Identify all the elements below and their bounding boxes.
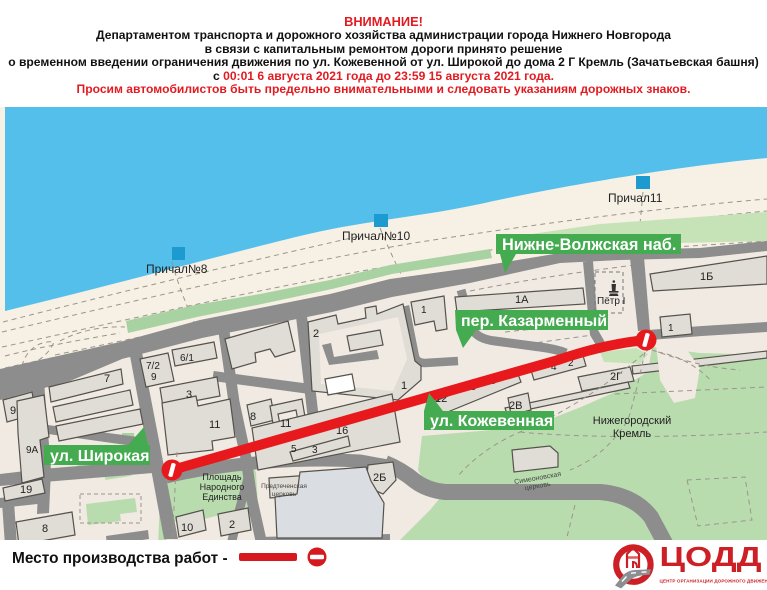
- svg-text:9А: 9А: [26, 445, 39, 456]
- svg-text:ул. Кожевенная: ул. Кожевенная: [430, 413, 553, 430]
- svg-text:8: 8: [250, 411, 256, 423]
- svg-text:Единства: Единства: [202, 492, 242, 502]
- svg-text:1: 1: [401, 380, 407, 392]
- svg-text:Нижегородский: Нижегородский: [593, 415, 671, 427]
- svg-text:пер. Казарменный: пер. Казарменный: [461, 313, 607, 330]
- svg-text:2: 2: [313, 328, 319, 340]
- svg-text:Кремль: Кремль: [613, 428, 652, 440]
- svg-text:Площадь: Площадь: [202, 472, 241, 482]
- svg-text:9: 9: [151, 372, 157, 383]
- svg-text:19: 19: [20, 484, 32, 496]
- svg-text:7/2: 7/2: [146, 361, 160, 372]
- svg-text:Нижне-Волжская наб.: Нижне-Волжская наб.: [502, 236, 676, 254]
- svg-text:1: 1: [668, 323, 674, 334]
- svg-text:церковь: церковь: [272, 491, 297, 498]
- svg-text:10: 10: [181, 522, 193, 534]
- svg-text:8: 8: [42, 523, 48, 535]
- svg-text:1: 1: [421, 305, 427, 316]
- svg-text:ЦОДД: ЦОДД: [660, 542, 762, 572]
- svg-text:9: 9: [10, 405, 16, 417]
- svg-text:Причал№10: Причал№10: [342, 229, 410, 243]
- svg-text:3: 3: [186, 389, 192, 401]
- svg-text:ЦЕНТР ОРГАНИЗАЦИИ ДОРОЖНОГО ДВ: ЦЕНТР ОРГАНИЗАЦИИ ДОРОЖНОГО ДВИЖЕНИЯ: [660, 579, 767, 584]
- svg-text:Предтеченская: Предтеченская: [261, 483, 307, 490]
- svg-text:1А: 1А: [515, 294, 529, 306]
- svg-text:3: 3: [312, 445, 318, 456]
- svg-text:Причал№8: Причал№8: [146, 262, 208, 276]
- svg-text:Народного: Народного: [200, 482, 245, 492]
- svg-text:Пётр I: Пётр I: [597, 296, 625, 307]
- svg-text:11: 11: [280, 418, 291, 430]
- svg-text:2: 2: [229, 519, 235, 531]
- svg-text:2Б: 2Б: [373, 472, 386, 484]
- svg-text:ул. Широкая: ул. Широкая: [50, 448, 149, 465]
- svg-text:2В: 2В: [509, 400, 522, 412]
- svg-text:7: 7: [104, 373, 110, 385]
- svg-text:5: 5: [291, 444, 297, 455]
- svg-text:Причал11: Причал11: [608, 191, 663, 205]
- svg-text:11: 11: [209, 419, 220, 431]
- svg-text:1Б: 1Б: [700, 271, 713, 283]
- svg-text:6/1: 6/1: [180, 353, 194, 364]
